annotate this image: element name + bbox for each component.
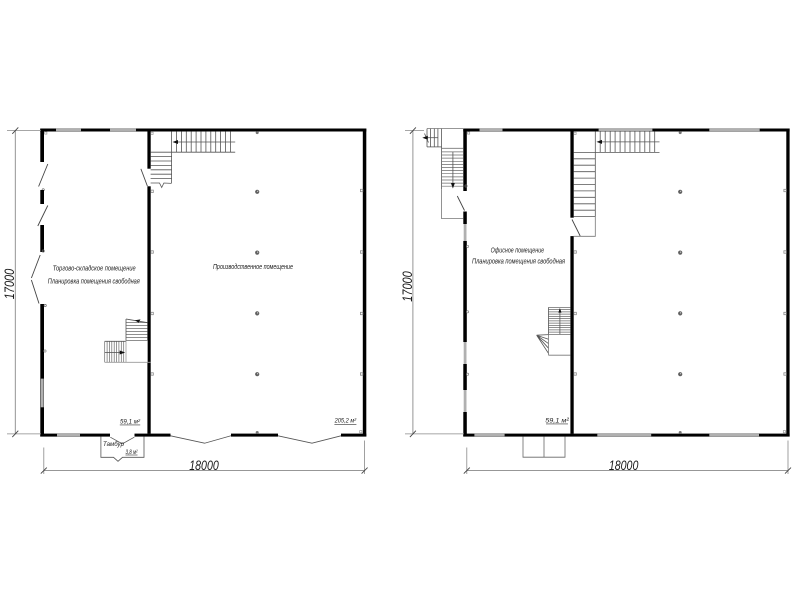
svg-text:Офисное помещение: Офисное помещение <box>491 248 545 255</box>
svg-text:Производственное помещение: Производственное помещение <box>213 263 293 271</box>
svg-text:18000: 18000 <box>609 457 639 473</box>
svg-text:17000: 17000 <box>1 269 17 300</box>
svg-text:205,2 м²: 205,2 м² <box>334 418 357 425</box>
svg-text:59,1 м²: 59,1 м² <box>120 418 141 425</box>
svg-text:Торгово-складское помещение: Торгово-складское помещение <box>53 265 136 273</box>
svg-text:59,1 м²: 59,1 м² <box>545 417 569 424</box>
svg-text:18000: 18000 <box>189 457 219 473</box>
svg-text:17000: 17000 <box>399 271 415 302</box>
svg-text:Планировка помещения свободная: Планировка помещения свободная <box>472 258 565 266</box>
svg-text:Тамбур: Тамбур <box>103 440 124 448</box>
svg-text:Планировка помещения свободная: Планировка помещения свободная <box>48 277 140 285</box>
